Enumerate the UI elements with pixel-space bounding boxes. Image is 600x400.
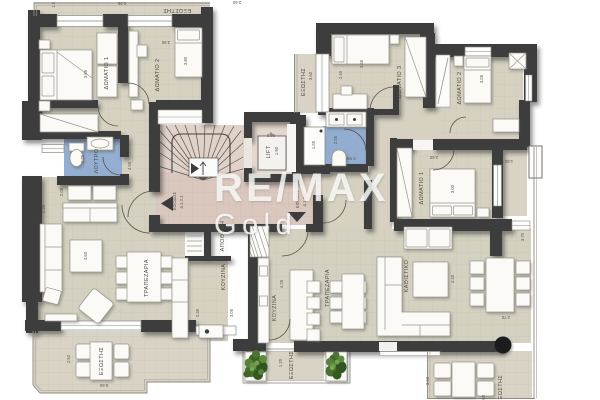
svg-text:ΕΞΩΣΤΗΣ: ΕΞΩΣΤΗΣ	[289, 351, 295, 379]
svg-text:2.08: 2.08	[59, 187, 64, 196]
svg-text:2.05: 2.05	[333, 135, 338, 144]
svg-text:ΤΡΑΠΕΖΑΡΙΑ: ΤΡΑΠΕΖΑΡΙΑ	[144, 259, 150, 297]
svg-text:3.00: 3.00	[450, 184, 455, 193]
svg-text:ΔΩΜΑΤΙΟ 1: ΔΩΜΑΤΙΟ 1	[104, 57, 110, 90]
svg-text:1.50: 1.50	[504, 159, 513, 164]
svg-text:ΚΑΘΙΣΤΙΚΟ: ΚΑΘΙΣΤΙΚΟ	[404, 259, 410, 292]
svg-text:ΕΞΩΣΤΗΣ: ΕΞΩΣΤΗΣ	[301, 68, 307, 96]
svg-text:2.60: 2.60	[232, 0, 241, 5]
svg-text:RE/MAX: RE/MAX	[214, 166, 389, 210]
svg-text:ΔΩΜΑΤΙΟ 2: ΔΩΜΑΤΙΟ 2	[457, 72, 463, 105]
svg-text:1.55: 1.55	[311, 140, 316, 149]
svg-text:2.30: 2.30	[195, 308, 200, 317]
svg-text:ΕΞΩΣΤΗΣ: ΕΞΩΣΤΗΣ	[99, 347, 105, 375]
svg-text:1.90: 1.90	[274, 146, 279, 155]
svg-text:Sw 2: Sw 2	[346, 156, 356, 161]
svg-text:2.52: 2.52	[66, 354, 71, 363]
svg-text:ΔΩΜΑΤΙΟ 1: ΔΩΜΑΤΙΟ 1	[419, 172, 425, 205]
svg-text:4.40: 4.40	[450, 274, 455, 283]
svg-text:2.40: 2.40	[338, 70, 343, 79]
svg-text:ΔΩΜΑΤΙΟ 3: ΔΩΜΑΤΙΟ 3	[397, 66, 403, 99]
svg-text:4.25: 4.25	[279, 279, 284, 288]
svg-text:ΚΟΥΖΙΝΑ: ΚΟΥΖΙΝΑ	[221, 264, 227, 291]
svg-text:Δ 1.2.1: Δ 1.2.1	[179, 195, 184, 209]
svg-text:1.5: 1.5	[51, 1, 56, 7]
svg-text:1.20: 1.20	[278, 358, 283, 367]
svg-text:4.55: 4.55	[127, 161, 132, 170]
svg-text:0.95: 0.95	[117, 1, 126, 6]
svg-text:LIFT: LIFT	[266, 145, 272, 158]
svg-text:0.90: 0.90	[267, 133, 276, 138]
svg-text:3.70: 3.70	[520, 232, 525, 241]
svg-text:3.90: 3.90	[161, 40, 170, 45]
svg-text:ΕΞΩΣΤΗΣ: ΕΞΩΣΤΗΣ	[163, 7, 191, 13]
svg-text:2.70: 2.70	[501, 315, 510, 320]
svg-text:3.65: 3.65	[359, 59, 364, 68]
svg-text:4.60: 4.60	[83, 251, 88, 260]
svg-text:ΕΞΩΣΤΗΣ: ΕΞΩΣΤΗΣ	[498, 375, 504, 400]
svg-text:2.25: 2.25	[80, 154, 85, 163]
svg-text:3.60: 3.60	[425, 376, 430, 385]
svg-text:3.05: 3.05	[479, 74, 484, 83]
svg-text:ΔΩΜΑΤΙΟ 2: ΔΩΜΑΤΙΟ 2	[155, 59, 161, 92]
svg-text:3.80: 3.80	[183, 56, 188, 65]
svg-text:2.60: 2.60	[429, 155, 438, 160]
svg-text:3.85: 3.85	[83, 69, 88, 78]
svg-text:5.60: 5.60	[99, 383, 108, 388]
svg-text:ΚΟΥΖΙΝΑ: ΚΟΥΖΙΝΑ	[272, 295, 278, 322]
svg-text:ΛΟΥΤΡΟ: ΛΟΥΤΡΟ	[94, 148, 100, 173]
svg-text:3.60: 3.60	[481, 394, 486, 400]
svg-text:3.60: 3.60	[308, 71, 313, 80]
svg-text:ΤΡΑΠΕΖΑΡΙΑ: ΤΡΑΠΕΖΑΡΙΑ	[325, 269, 331, 307]
svg-text:3.05: 3.05	[229, 308, 234, 317]
svg-text:2.35: 2.35	[41, 204, 46, 213]
svg-text:Gold: Gold	[214, 209, 297, 241]
